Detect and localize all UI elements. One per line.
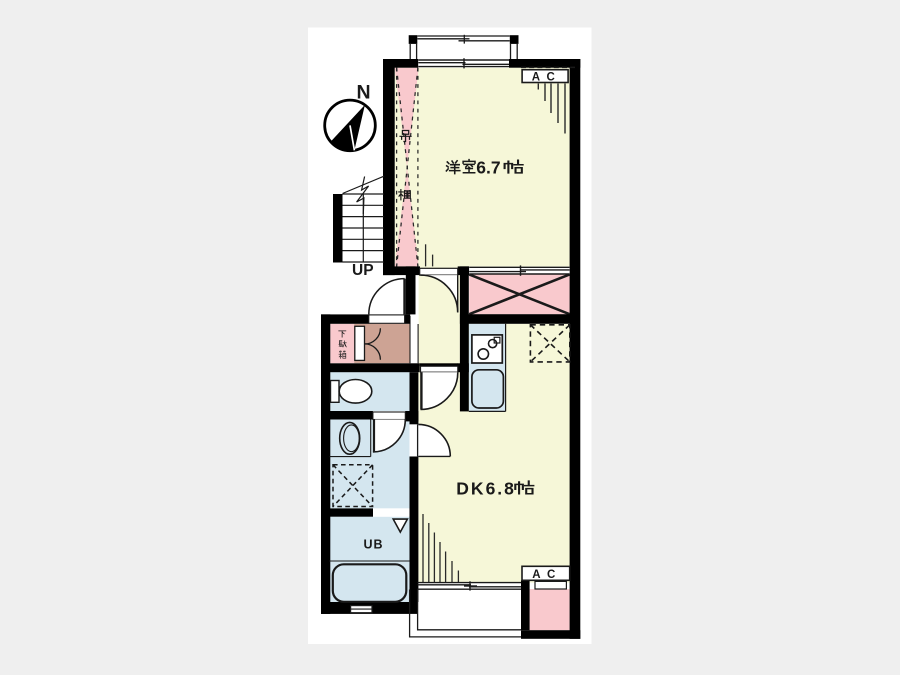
svg-text:UB: UB [363,538,383,552]
svg-text:N: N [356,81,370,103]
svg-text:UP: UP [352,262,374,279]
svg-text:AC: AC [532,71,562,83]
svg-text:6.7: 6.7 [476,158,500,178]
svg-text:DK6.8: DK6.8 [456,478,516,498]
svg-text:AC: AC [532,569,562,581]
